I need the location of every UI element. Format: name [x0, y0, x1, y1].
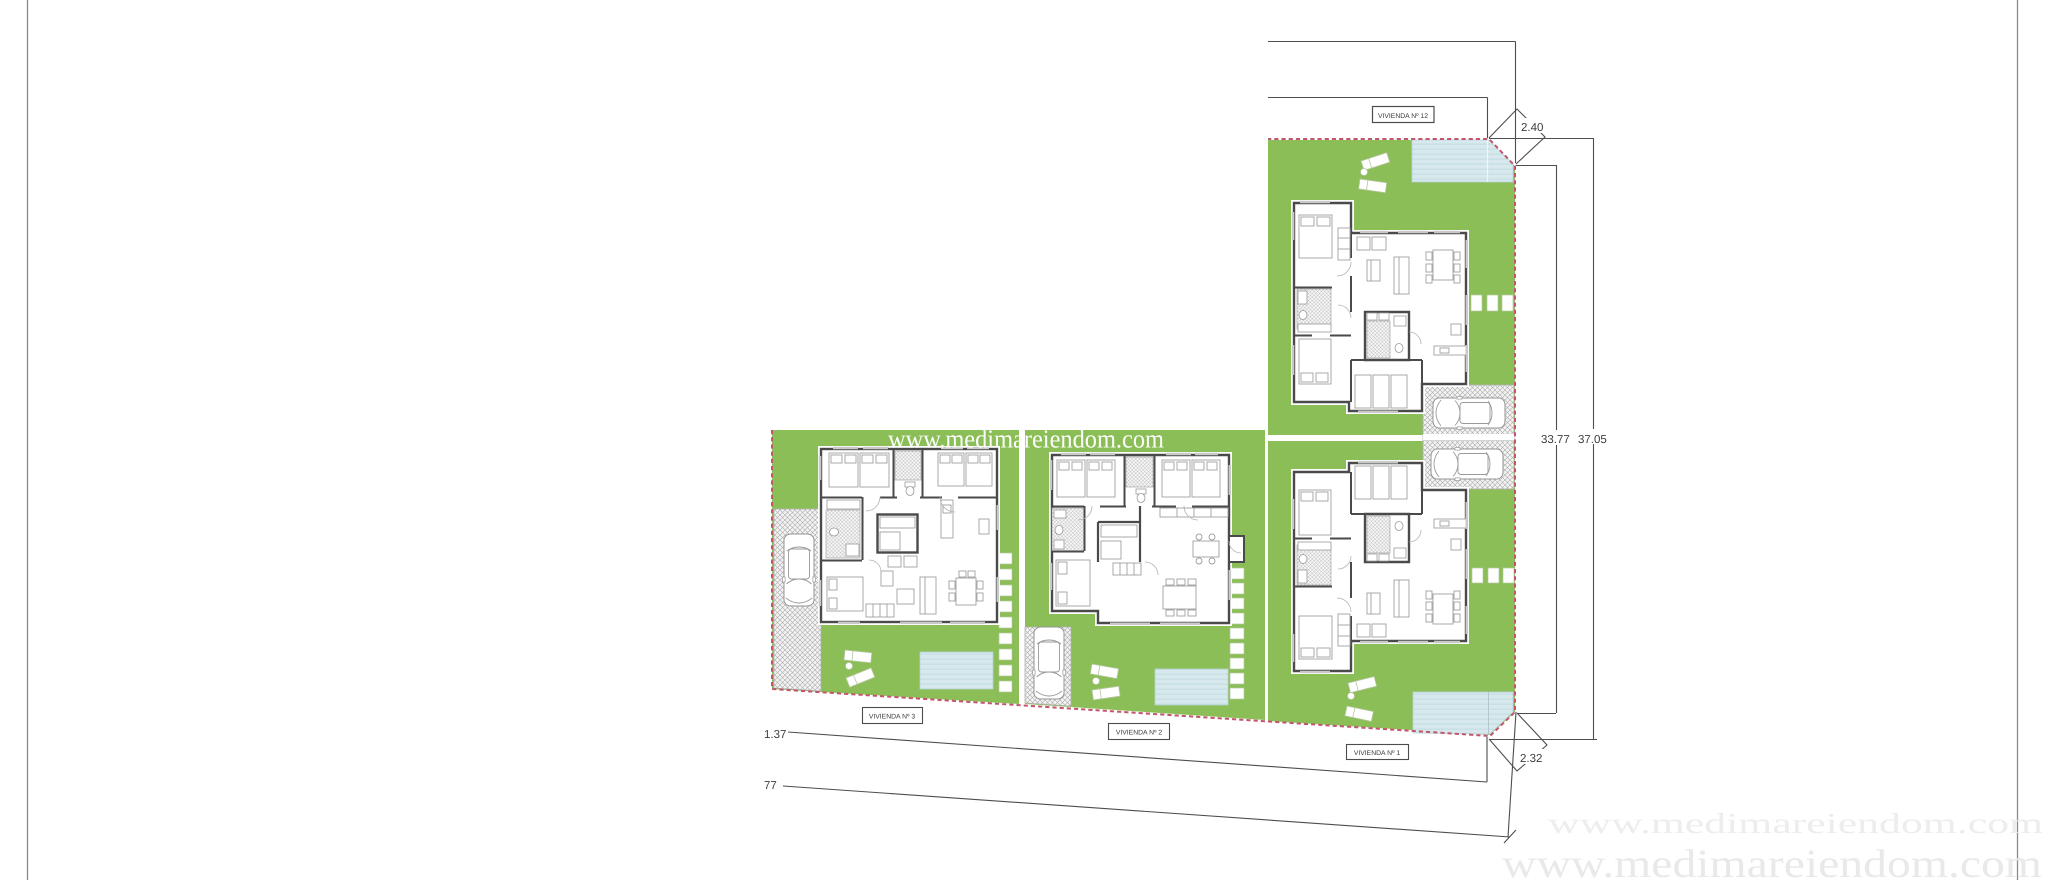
svg-text:2.40: 2.40 — [1521, 122, 1543, 134]
svg-text:33.77: 33.77 — [1541, 434, 1570, 446]
svg-text:VIVIENDA Nº 12: VIVIENDA Nº 12 — [1378, 113, 1428, 120]
svg-text:VIVIENDA Nº 3: VIVIENDA Nº 3 — [869, 714, 916, 721]
svg-text:77: 77 — [764, 780, 777, 792]
svg-text:VIVIENDA Nº 1: VIVIENDA Nº 1 — [1354, 750, 1401, 757]
svg-text:www.medimareiendom.com: www.medimareiendom.com — [1548, 808, 2044, 840]
svg-text:www.medimareiendom.com: www.medimareiendom.com — [888, 425, 1164, 454]
svg-text:1.37: 1.37 — [764, 729, 786, 741]
svg-text:VIVIENDA Nº 2: VIVIENDA Nº 2 — [1116, 730, 1163, 737]
svg-text:2.32: 2.32 — [1520, 753, 1542, 765]
svg-text:www.medimareiendom.com: www.medimareiendom.com — [1502, 841, 2042, 880]
svg-text:37.05: 37.05 — [1578, 434, 1607, 446]
